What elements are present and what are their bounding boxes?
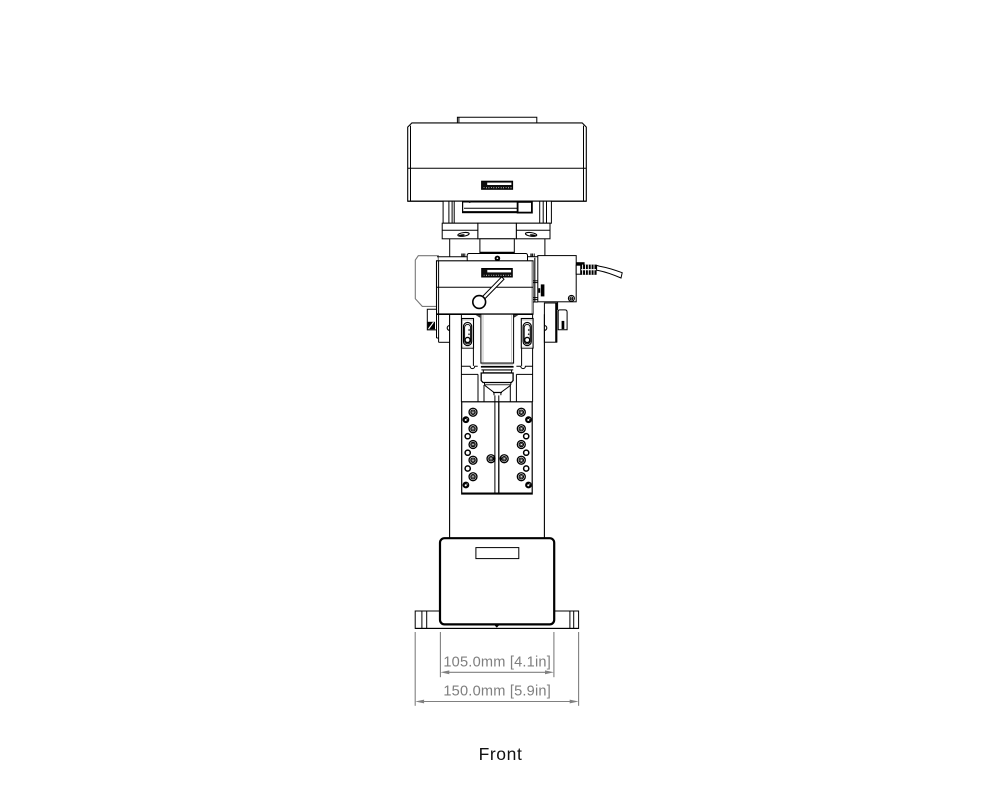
svg-text:Front: Front xyxy=(479,744,523,764)
svg-text:150.0mm [5.9in]: 150.0mm [5.9in] xyxy=(443,684,551,700)
svg-text:105.0mm [4.1in]: 105.0mm [4.1in] xyxy=(443,654,551,670)
